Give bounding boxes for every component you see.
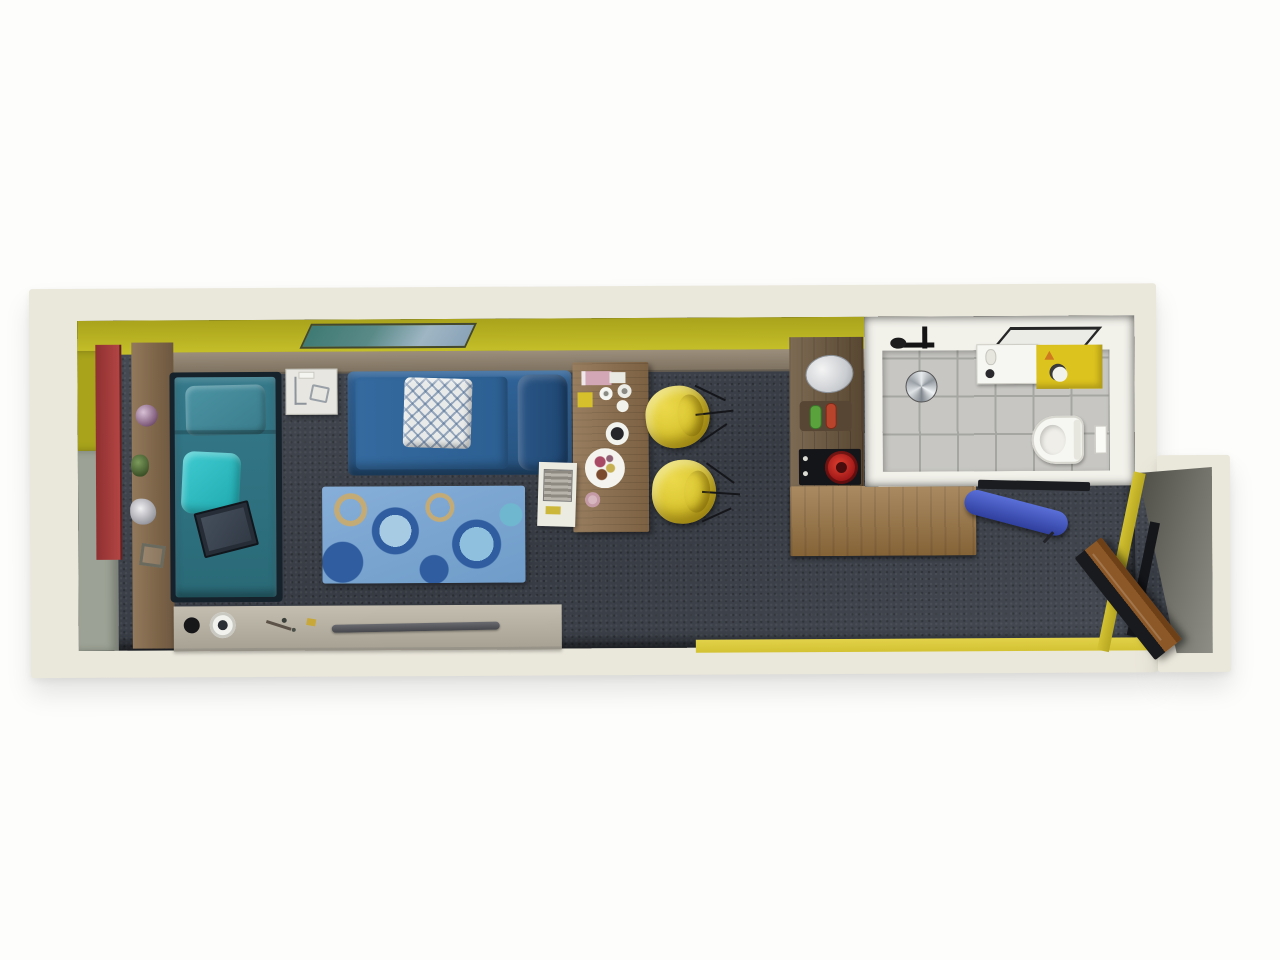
soundbar xyxy=(332,622,500,633)
small-gold-item xyxy=(306,618,316,626)
ornament-green-icon xyxy=(131,455,149,477)
speaker-knob-icon xyxy=(184,617,200,633)
chair-seat-fold xyxy=(683,470,712,514)
dark-plate xyxy=(606,422,629,445)
orange-mark xyxy=(1044,351,1054,360)
soap-dish-icon xyxy=(1052,367,1067,382)
nightstand xyxy=(285,369,337,415)
yellow-chip xyxy=(545,506,560,514)
media-sideboard xyxy=(174,604,562,651)
kettle-icon xyxy=(804,352,856,395)
food-plate xyxy=(585,448,625,488)
pink-box xyxy=(581,371,611,385)
screenshot-canvas xyxy=(0,0,1280,960)
green-bottle-icon xyxy=(810,405,822,429)
red-pan xyxy=(825,451,858,484)
red-wardrobe-panel xyxy=(95,345,122,560)
shower-mixer-icon xyxy=(890,338,906,349)
ornament-frame-icon xyxy=(139,543,166,568)
small-item xyxy=(292,628,296,632)
saucer xyxy=(600,387,613,400)
shower-drain-icon xyxy=(905,370,937,402)
bed-duvet-fold xyxy=(175,430,276,435)
pink-cup xyxy=(585,492,600,507)
yellow-floor-band xyxy=(696,637,1154,652)
kitchen-counter xyxy=(790,485,976,556)
toilet xyxy=(1032,416,1084,464)
kitchenette-unit xyxy=(789,337,864,487)
washbasin xyxy=(976,344,1038,384)
white-box xyxy=(609,372,625,383)
red-bottle-icon xyxy=(826,403,837,429)
bathroom-counter xyxy=(1036,345,1102,389)
toilet-lid-edge xyxy=(1074,420,1081,460)
bed-pillow xyxy=(185,384,266,436)
round-speaker-icon xyxy=(210,612,236,638)
nightstand-sketch-frame-icon xyxy=(309,384,330,403)
faucet-icon xyxy=(985,369,994,378)
dining-table xyxy=(572,362,649,532)
lattice-pillow xyxy=(403,377,473,449)
cooktop-dial-icon xyxy=(803,471,808,476)
cooktop-dial-icon xyxy=(803,456,808,461)
cooktop xyxy=(799,449,861,485)
nightstand-item xyxy=(298,372,314,379)
flush-plate xyxy=(1095,426,1107,454)
nightstand-sketch-lamp-icon xyxy=(294,377,306,405)
cutting-board xyxy=(800,401,852,431)
yellow-note xyxy=(578,392,593,407)
floor-plan xyxy=(0,0,1280,960)
soap-bottle-icon xyxy=(985,349,996,365)
ornament-purple-icon xyxy=(136,405,158,427)
circle-pattern-rug xyxy=(322,486,526,584)
small-item xyxy=(282,618,287,623)
bathroom xyxy=(864,315,1135,486)
saucer xyxy=(617,384,631,398)
landscape-painting xyxy=(299,323,477,349)
sofa-armrest xyxy=(517,374,568,470)
side-table xyxy=(537,462,577,527)
book xyxy=(543,469,573,502)
ornament-silver-icon xyxy=(130,499,156,525)
remote-stick xyxy=(266,620,292,631)
west-wood-strip xyxy=(131,342,175,648)
chair-seat-fold xyxy=(675,393,705,438)
saucer xyxy=(617,400,629,412)
